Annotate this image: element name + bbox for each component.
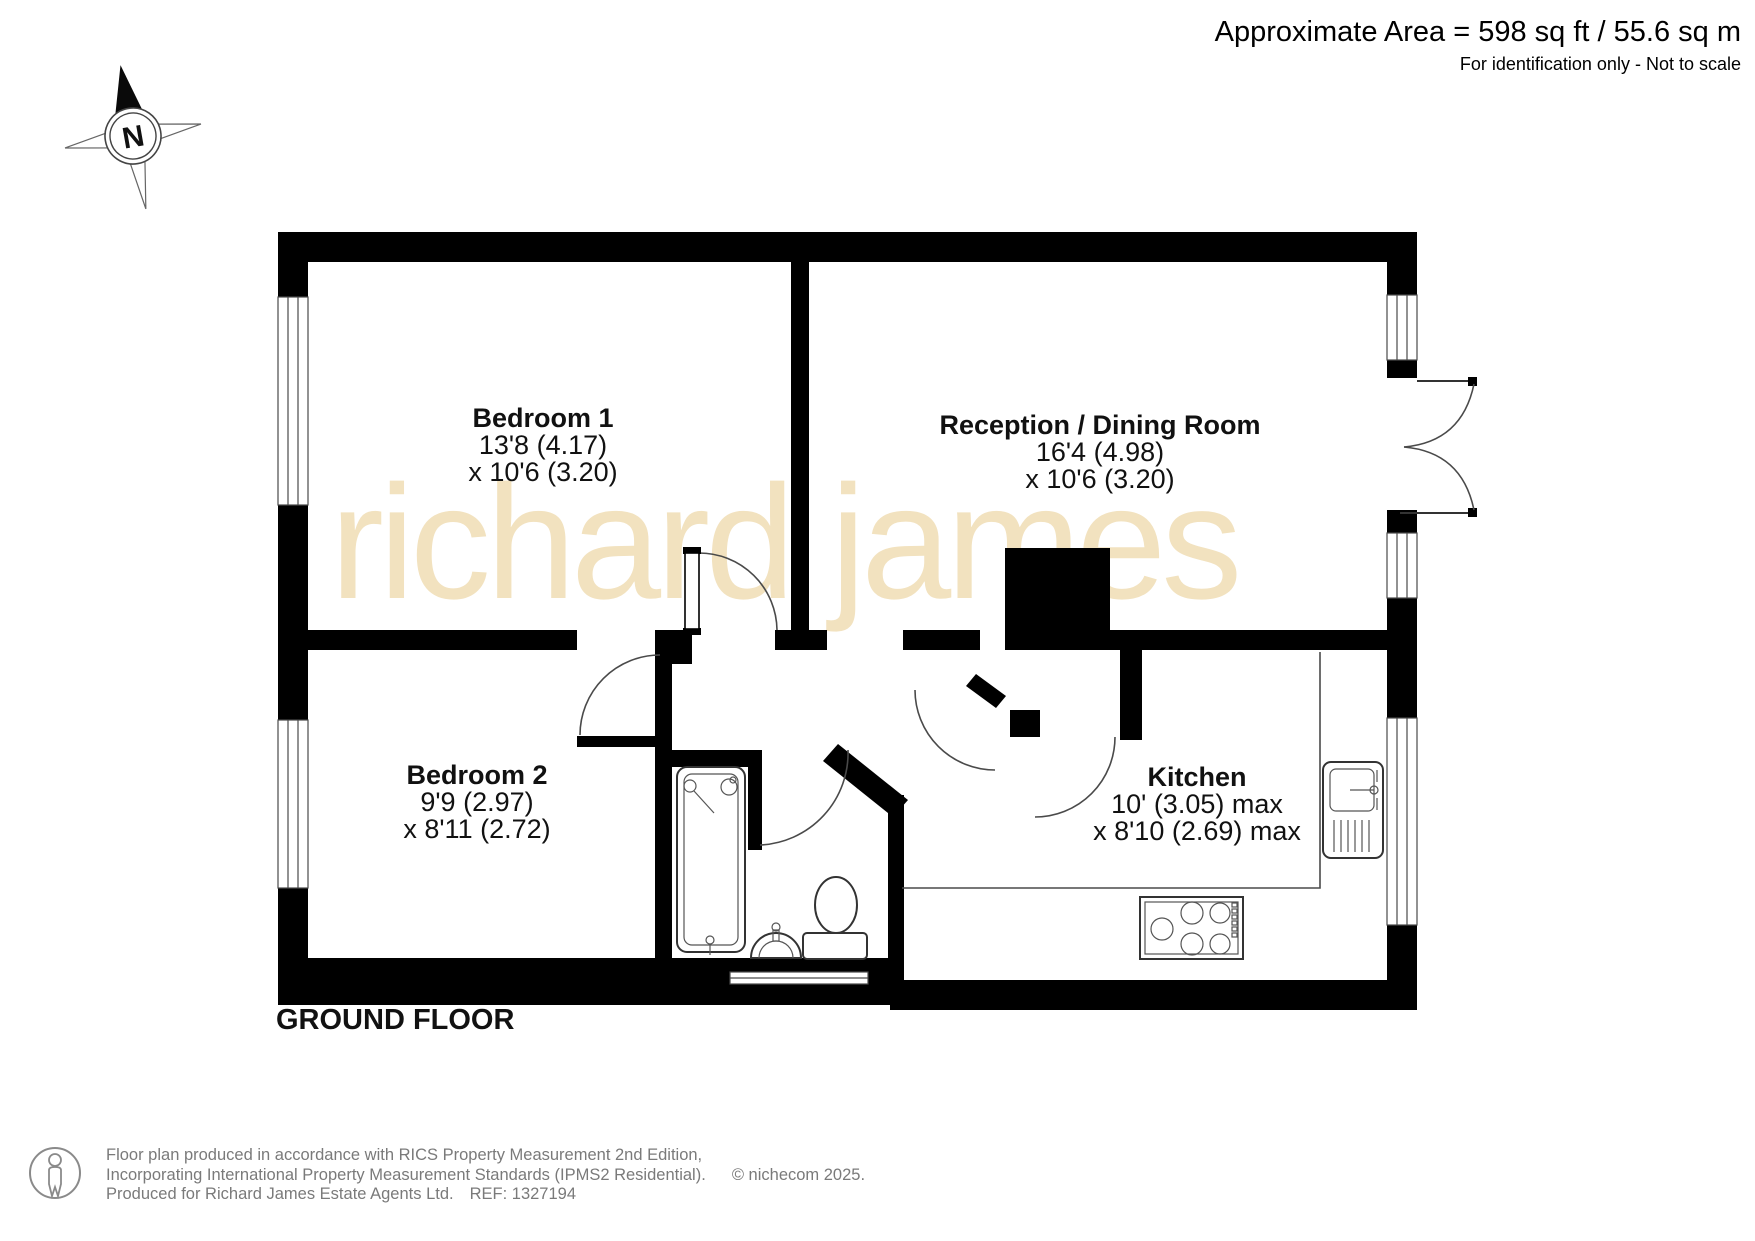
room-label-bedroom1: Bedroom 1 13'8 (4.17) x 10'6 (3.20) xyxy=(468,405,617,486)
reception-window-upper xyxy=(1387,295,1417,360)
bedroom2-door xyxy=(577,655,660,747)
room-dim1: 13'8 (4.17) xyxy=(468,432,617,459)
bathroom-window xyxy=(730,972,868,984)
bath-tub xyxy=(677,767,745,955)
toilet xyxy=(803,877,867,959)
floor-title: GROUND FLOOR xyxy=(276,1004,514,1037)
bedroom1-window xyxy=(278,297,308,505)
room-name: Reception / Dining Room xyxy=(940,412,1261,439)
room-dim2: x 10'6 (3.20) xyxy=(940,466,1261,493)
reception-window-lower xyxy=(1387,533,1417,598)
room-dim1: 10' (3.05) max xyxy=(1093,791,1301,818)
bedroom2-window xyxy=(278,720,308,888)
approximate-area: Approximate Area = 598 sq ft / 55.6 sq m xyxy=(1215,16,1741,49)
room-label-kitchen: Kitchen 10' (3.05) max x 8'10 (2.69) max xyxy=(1093,764,1301,845)
room-dim2: x 8'11 (2.72) xyxy=(403,816,550,843)
room-dim2: x 10'6 (3.20) xyxy=(468,459,617,486)
footer-line1: Floor plan produced in accordance with R… xyxy=(106,1146,865,1166)
kitchen-window xyxy=(1387,718,1417,925)
kitchen-hob xyxy=(1140,897,1243,959)
room-name: Kitchen xyxy=(1093,764,1301,791)
compass-north-icon: N xyxy=(60,58,210,218)
bathroom-basin xyxy=(751,923,801,958)
header: Approximate Area = 598 sq ft / 55.6 sq m… xyxy=(1215,16,1741,75)
compass-south-point xyxy=(129,157,154,210)
hallway-door xyxy=(915,690,995,770)
angled-wall-stub xyxy=(966,674,1006,708)
french-doors xyxy=(1400,377,1477,517)
chimney-breast xyxy=(1005,548,1110,650)
footer-ref: REF: 1327194 xyxy=(470,1185,576,1203)
room-name: Bedroom 2 xyxy=(403,762,550,789)
footer-line2: Incorporating International Property Mea… xyxy=(106,1166,706,1184)
bedroom1-door xyxy=(683,547,777,635)
footer-line3: Produced for Richard James Estate Agents… xyxy=(106,1185,454,1203)
room-label-bedroom2: Bedroom 2 9'9 (2.97) x 8'11 (2.72) xyxy=(403,762,550,843)
floorplan-drawing xyxy=(0,0,1755,1241)
person-icon xyxy=(28,1146,84,1202)
room-label-reception: Reception / Dining Room 16'4 (4.98) x 10… xyxy=(940,412,1261,493)
room-name: Bedroom 1 xyxy=(468,405,617,432)
room-dim1: 9'9 (2.97) xyxy=(403,789,550,816)
room-dim2: x 8'10 (2.69) max xyxy=(1093,818,1301,845)
room-dim1: 16'4 (4.98) xyxy=(940,439,1261,466)
identification-note: For identification only - Not to scale xyxy=(1215,54,1741,75)
footer-copyright: © nichecom 2025. xyxy=(732,1166,865,1184)
footer: Floor plan produced in accordance with R… xyxy=(28,1146,865,1205)
floorplan-page: Approximate Area = 598 sq ft / 55.6 sq m… xyxy=(0,0,1755,1241)
kitchen-sink xyxy=(1323,762,1383,858)
